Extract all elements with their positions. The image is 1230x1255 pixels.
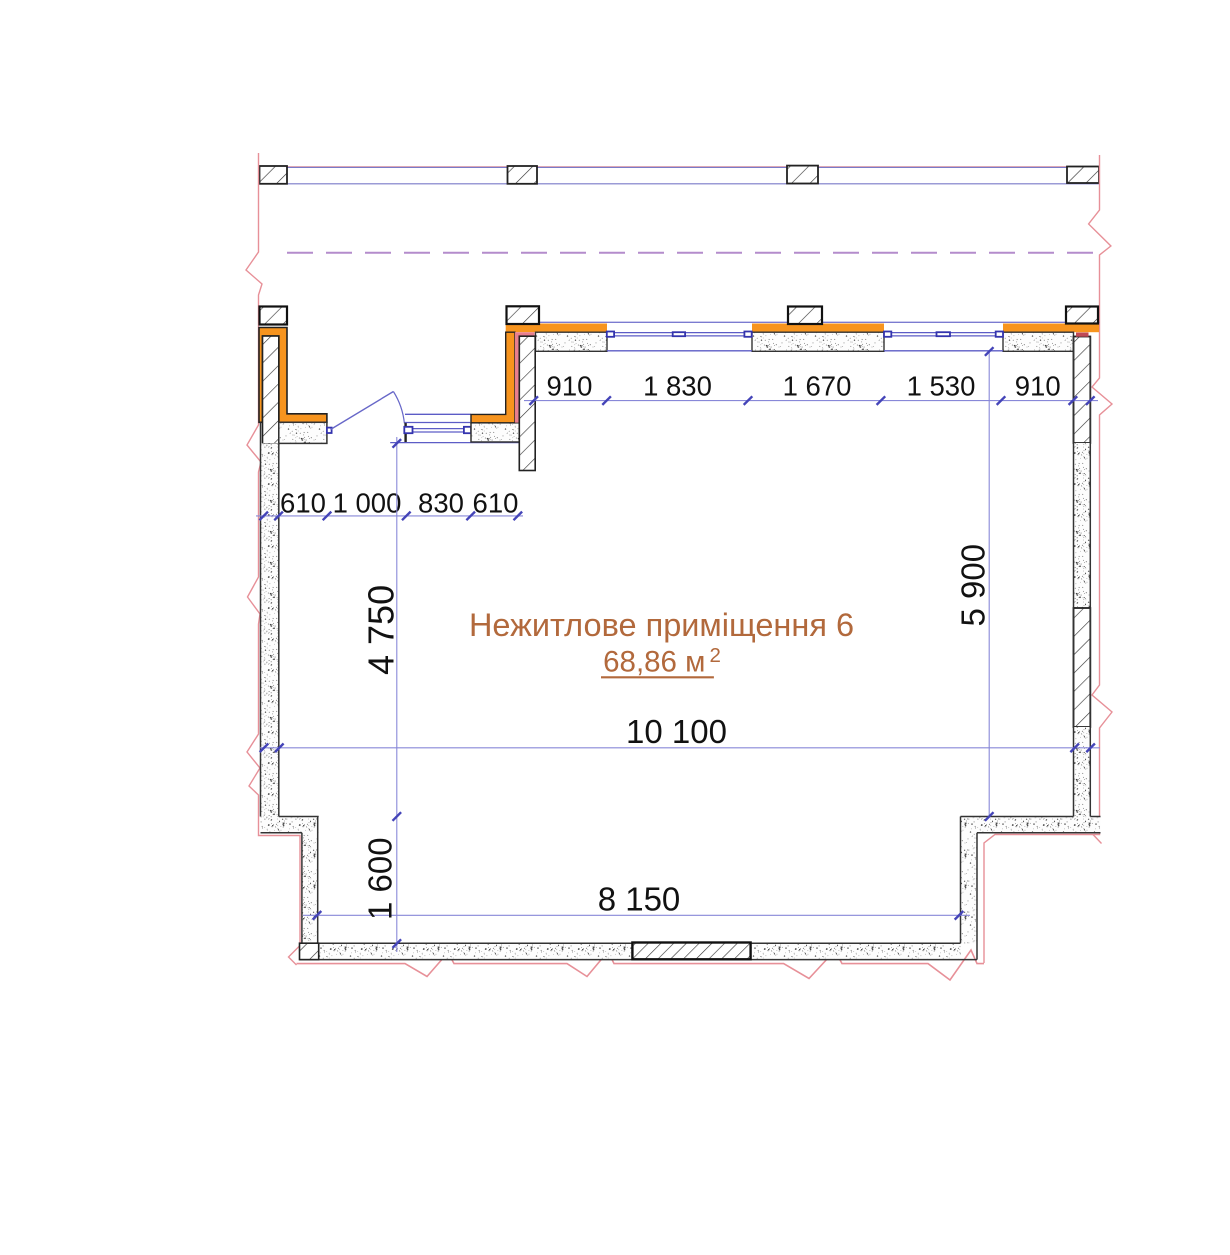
svg-text:1 600: 1 600 xyxy=(362,837,399,920)
svg-text:610: 610 xyxy=(473,487,519,518)
svg-text:610: 610 xyxy=(280,487,326,518)
svg-text:910: 910 xyxy=(1015,370,1061,401)
svg-text:1 530: 1 530 xyxy=(907,370,976,401)
svg-text:1 830: 1 830 xyxy=(643,370,712,401)
svg-text:10 100: 10 100 xyxy=(626,713,727,750)
svg-text:1 670: 1 670 xyxy=(783,370,852,401)
svg-text:4 750: 4 750 xyxy=(361,585,402,675)
svg-text:8 150: 8 150 xyxy=(598,881,681,918)
svg-text:1 000: 1 000 xyxy=(333,487,402,518)
svg-text:68,86 м2: 68,86 м2 xyxy=(603,644,721,679)
svg-text:910: 910 xyxy=(547,370,593,401)
svg-text:830: 830 xyxy=(418,487,464,518)
svg-text:Нежитлове приміщення 6: Нежитлове приміщення 6 xyxy=(469,607,854,643)
svg-text:5 900: 5 900 xyxy=(955,544,992,627)
